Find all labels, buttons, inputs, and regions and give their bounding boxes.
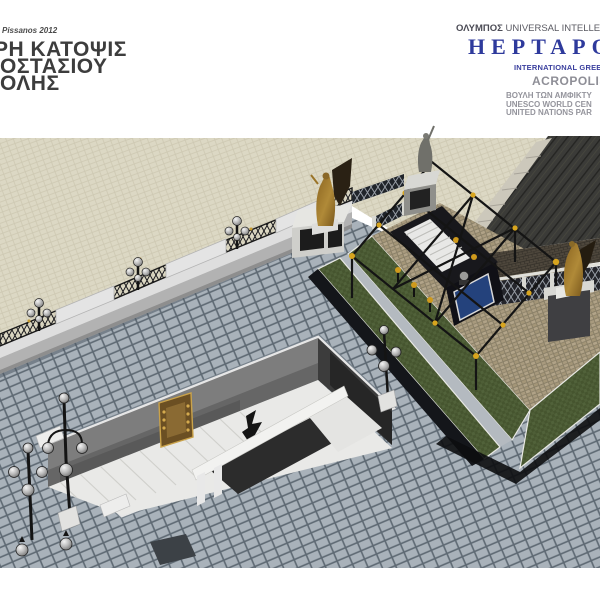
org-name-greek: ΟΛΥΜΠΟΣ [456, 23, 503, 34]
render-page: Pissanos 2012 ΡΗ ΚΑΤΟΨΙΣ ΟΣΤΑΣΙΟΥ ΟΛΗΣ Ο… [0, 0, 600, 600]
organization-line: ΟΛΥΜΠΟΣ UNIVERSAL INTELLE [456, 23, 600, 34]
gold-door-panel [159, 393, 193, 447]
caption-block: ΒΟΥΛΗ ΤΩΝ ΑΜΦΙΚΤΥ UNESCO WORLD CEN UNITE… [506, 92, 592, 118]
bust-statue [460, 272, 469, 281]
brand-wordmark: HEPTAPO [468, 34, 600, 60]
org-tagline: UNIVERSAL INTELLE [503, 23, 600, 34]
site-label: ACROPOLIS [532, 74, 600, 88]
copyright-credit: Pissanos 2012 [2, 26, 57, 35]
drawing-title: ΡΗ ΚΑΤΟΨΙΣ ΟΣΤΑΣΙΟΥ ΟΛΗΣ [0, 41, 127, 92]
caption-line3: UNITED NATIONS PAR [506, 109, 592, 118]
brand-subtitle: INTERNATIONAL GREEN [514, 63, 600, 72]
